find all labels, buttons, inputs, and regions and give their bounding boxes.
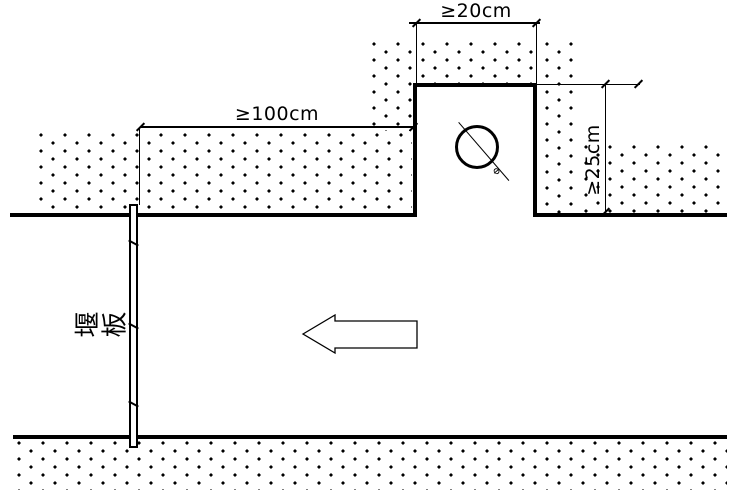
flow-arrow-icon [300,312,422,358]
dim-right-label: ≥25cm [583,105,603,215]
soil-hatch-top-strip [417,40,533,83]
soil-hatch-bottom [13,439,727,490]
dim-left-line [140,126,414,128]
pipe-crossing-diagram: ≥20cm ≥100cm ≥25cm Φ 堰板 [0,0,748,493]
dim-right-line [605,84,606,215]
dim-left-label: ≥100cm [197,104,357,124]
soil-hatch-top-left-flank [368,40,412,131]
ground-line-right [537,213,727,217]
dim-top-ext-right [536,23,537,84]
ground-line-left [10,213,415,217]
dim-tick [634,79,643,88]
dim-right-ext-top [537,84,640,85]
soil-hatch-left-band [35,131,412,213]
trench-bottom-line [13,435,727,439]
weir-board-label: 堰板 [76,297,103,351]
soil-hatch-top-right-flank [541,40,577,213]
dim-left-ext [139,127,140,205]
dim-top-label: ≥20cm [406,1,546,21]
dim-top-line [409,22,540,24]
dim-top-ext-left [416,23,417,84]
